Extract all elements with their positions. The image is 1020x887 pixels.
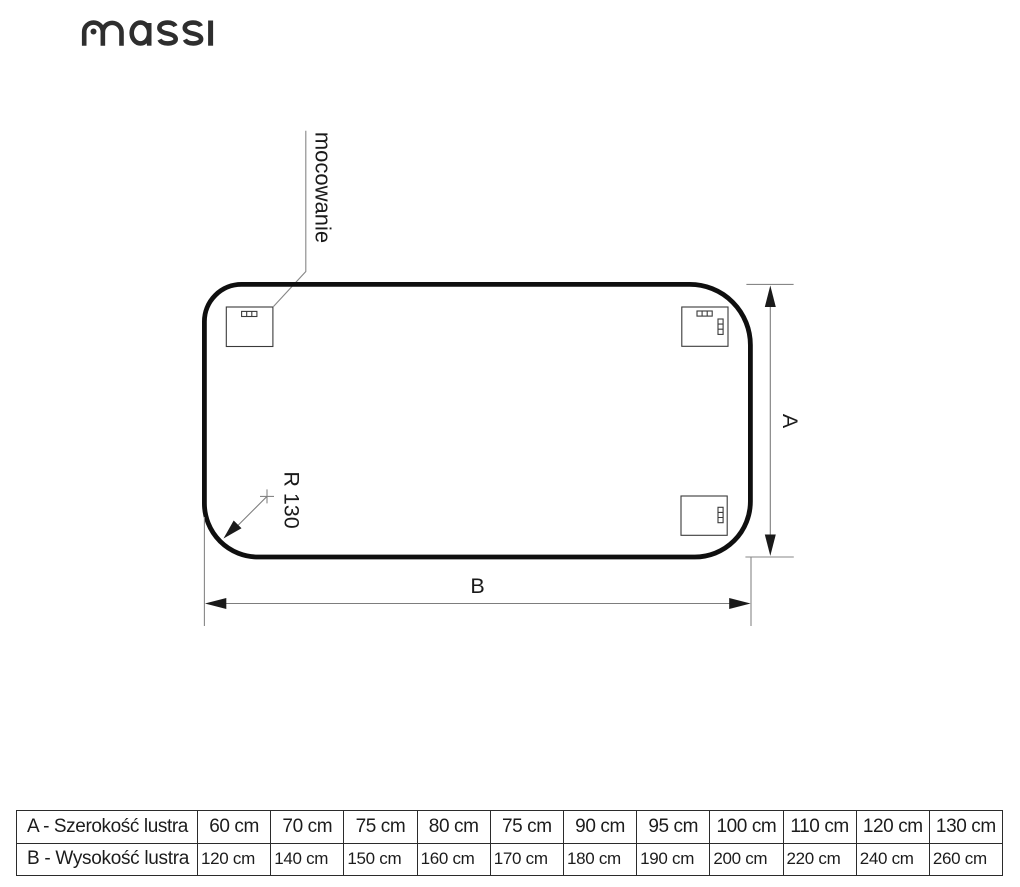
- svg-text:B: B: [470, 574, 484, 598]
- svg-text:mocowanie: mocowanie: [311, 132, 336, 243]
- svg-text:R 130: R 130: [279, 471, 303, 528]
- svg-text:A: A: [778, 414, 802, 429]
